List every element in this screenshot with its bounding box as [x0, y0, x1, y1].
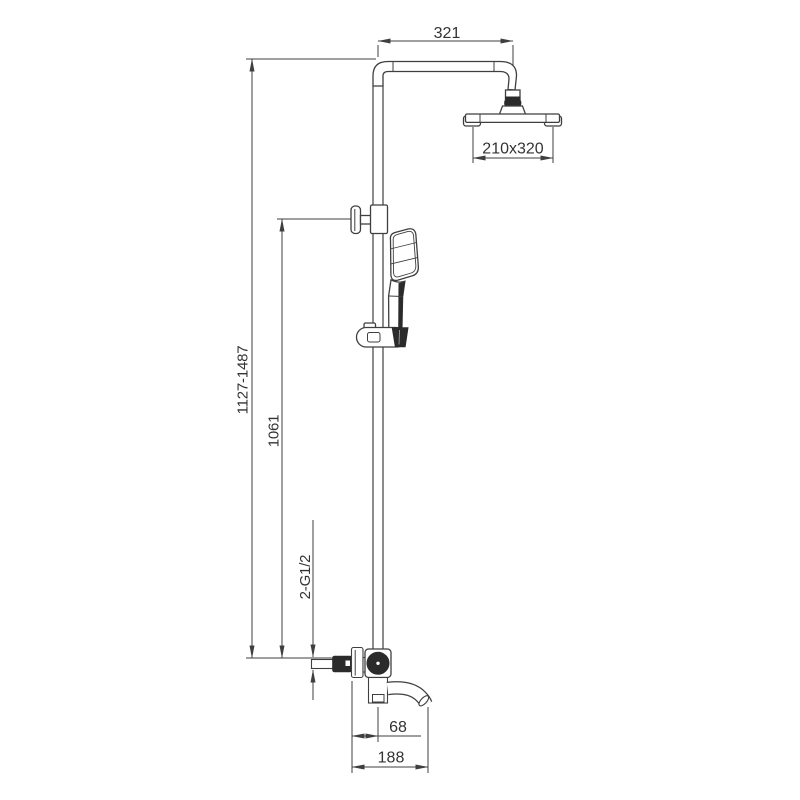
diverter-tee-body	[371, 205, 388, 234]
spout-base	[369, 678, 388, 704]
diverter-knob	[351, 206, 361, 234]
dim-riser-height-label: 1061	[266, 415, 283, 448]
hand-shower-holder	[392, 328, 408, 348]
arm-nut-band	[506, 97, 521, 100]
dim-spout-reach-label: 188	[378, 750, 405, 767]
hand-shower	[389, 229, 419, 329]
dim-spout-center-offset-label: 68	[389, 719, 407, 736]
knob-center-dot	[376, 662, 379, 665]
ball-joint-icon	[505, 100, 522, 106]
shower-arm	[373, 62, 517, 91]
head-hub	[500, 106, 526, 114]
dim-spout-center-offset	[352, 707, 421, 742]
mixer-valve	[312, 648, 431, 708]
diverter	[351, 205, 388, 234]
diverter-stem	[361, 216, 372, 225]
wall-escutcheon	[352, 648, 364, 678]
grip-notch	[346, 661, 351, 667]
handle-shading	[399, 282, 405, 329]
dim-arm-width-label: 321	[434, 25, 461, 42]
riser-pipe	[373, 86, 383, 650]
mixer-handle-rod	[312, 660, 334, 669]
dim-riser-height	[277, 219, 351, 658]
shower-column-technical-drawing: 321 210x320 1127-1487 1061 2-G1/2 68 188	[0, 0, 800, 800]
dim-overall-height-label: 1127-1487	[235, 346, 252, 415]
overhead-shower	[464, 90, 562, 126]
dim-head-size-label: 210x320	[482, 141, 543, 158]
inlet-thread-label: 2-G1/2	[297, 555, 314, 600]
